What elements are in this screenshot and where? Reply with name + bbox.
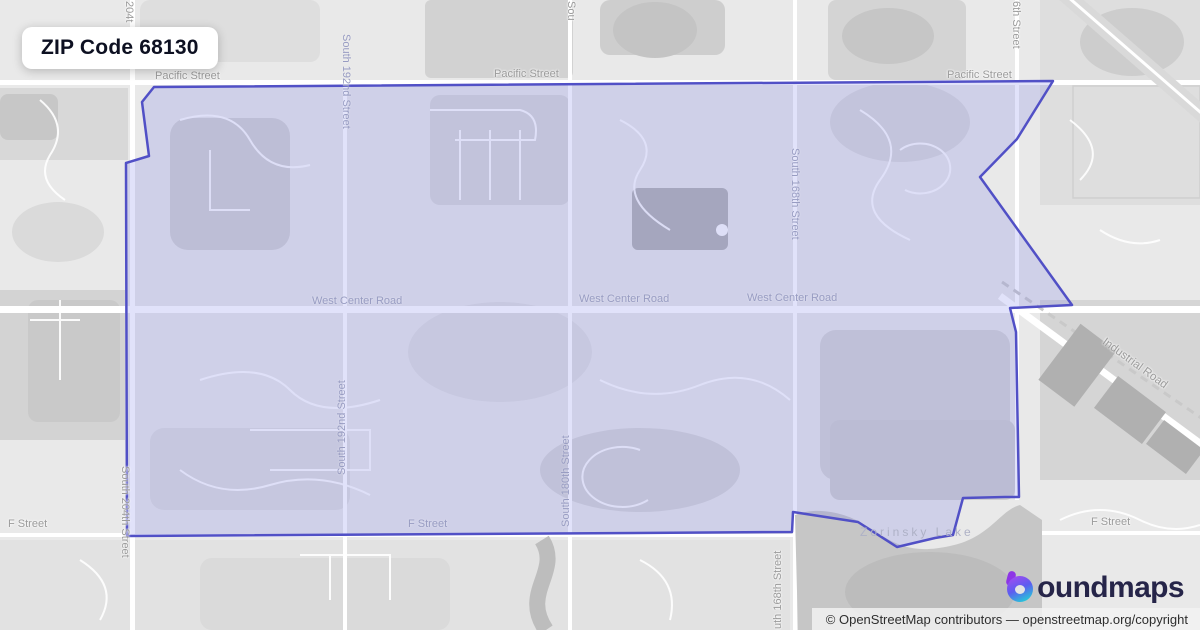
attribution-copyright-link[interactable]: openstreetmap.org/copyright <box>1023 612 1188 627</box>
zip-title-card: ZIP Code 68130 <box>22 27 218 69</box>
attribution-text: © OpenStreetMap contributors <box>826 612 1003 627</box>
boundmaps-logo-text: oundmaps <box>1037 573 1184 603</box>
boundmaps-logo: oundmaps <box>1006 572 1184 603</box>
page-title: ZIP Code 68130 <box>41 36 199 60</box>
attribution-separator: — <box>1002 612 1022 627</box>
attribution-bar: © OpenStreetMap contributors — openstree… <box>812 608 1200 630</box>
map-canvas[interactable] <box>0 0 1200 630</box>
boundmaps-b-icon <box>1006 572 1036 603</box>
zip-boundary-polygon[interactable] <box>126 81 1072 547</box>
map-screenshot: Pacific Street Pacific Street Pacific St… <box>0 0 1200 630</box>
